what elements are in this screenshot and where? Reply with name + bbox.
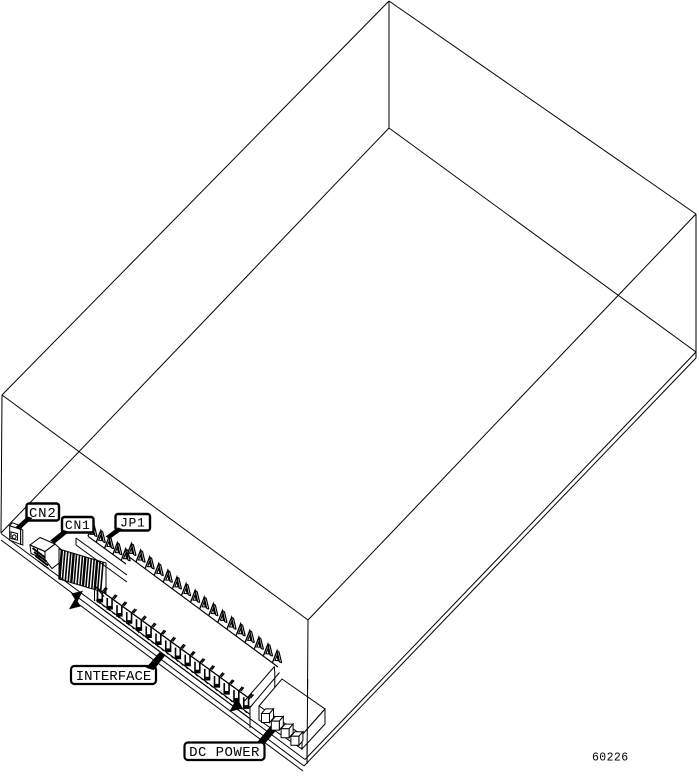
svg-text:JP1: JP1 [120,516,145,531]
svg-text:INTERFACE: INTERFACE [76,669,152,685]
svg-text:60226: 60226 [592,752,629,765]
svg-text:CN2: CN2 [29,506,57,522]
svg-text:DC POWER: DC POWER [189,745,260,761]
svg-text:CN1: CN1 [65,518,91,533]
